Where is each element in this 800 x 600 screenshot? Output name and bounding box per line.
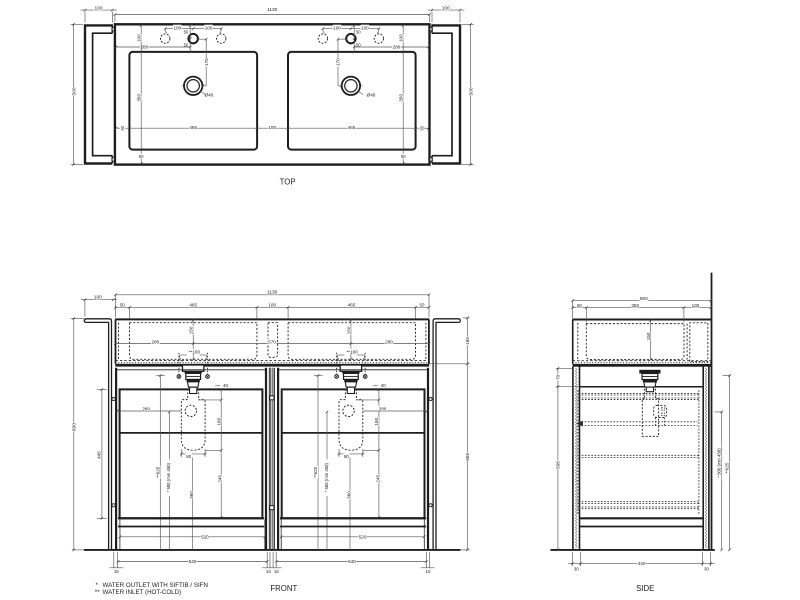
svg-text:80: 80 bbox=[344, 454, 349, 459]
svg-text:50: 50 bbox=[139, 154, 144, 159]
svg-text:* 500 (min 450): * 500 (min 450) bbox=[324, 462, 329, 492]
svg-text:595: 595 bbox=[556, 461, 561, 469]
svg-text:50: 50 bbox=[120, 302, 125, 307]
svg-text:50: 50 bbox=[184, 29, 189, 34]
svg-text:360: 360 bbox=[347, 491, 352, 499]
svg-text:170: 170 bbox=[204, 58, 209, 66]
svg-text:WATER INLET (HOT-COLD): WATER INLET (HOT-COLD) bbox=[103, 589, 182, 596]
svg-text:40: 40 bbox=[223, 383, 229, 388]
svg-text:**625: **625 bbox=[724, 462, 729, 474]
svg-text:150: 150 bbox=[646, 332, 651, 340]
svg-text:500: 500 bbox=[640, 296, 648, 302]
svg-text:10: 10 bbox=[266, 569, 271, 574]
svg-text:* 500 (min 450): * 500 (min 450) bbox=[166, 462, 171, 492]
svg-text:WATER OUTLET WITH SIFTIB / SIF: WATER OUTLET WITH SIFTIB / SIFN bbox=[103, 582, 208, 589]
svg-text:100: 100 bbox=[442, 5, 450, 11]
svg-text:Ø46: Ø46 bbox=[205, 92, 214, 97]
svg-text:1130: 1130 bbox=[267, 7, 278, 13]
svg-text:350: 350 bbox=[399, 94, 404, 102]
svg-text:50: 50 bbox=[420, 302, 425, 307]
svg-text:10: 10 bbox=[114, 569, 119, 574]
svg-text:10: 10 bbox=[426, 569, 431, 574]
svg-text:**100: **100 bbox=[346, 349, 358, 354]
svg-text:445: 445 bbox=[97, 451, 102, 459]
svg-text:TOP: TOP bbox=[280, 177, 296, 186]
svg-text:280: 280 bbox=[142, 406, 150, 411]
svg-text:280: 280 bbox=[379, 406, 387, 411]
svg-text:50: 50 bbox=[120, 125, 125, 130]
svg-text:280: 280 bbox=[140, 45, 148, 50]
svg-text:100: 100 bbox=[399, 34, 404, 42]
svg-text:10: 10 bbox=[274, 569, 279, 574]
svg-text:360: 360 bbox=[189, 491, 194, 499]
svg-text:465: 465 bbox=[189, 302, 197, 307]
svg-text:50: 50 bbox=[577, 303, 582, 308]
svg-text:100: 100 bbox=[173, 25, 181, 30]
svg-text:50: 50 bbox=[356, 29, 361, 34]
svg-text:440: 440 bbox=[638, 561, 646, 566]
svg-text:* 500 (min 450): * 500 (min 450) bbox=[717, 448, 722, 478]
svg-text:500: 500 bbox=[468, 87, 474, 95]
svg-text:50: 50 bbox=[356, 42, 361, 47]
svg-text:Ø46: Ø46 bbox=[367, 92, 376, 97]
svg-text:50: 50 bbox=[401, 154, 406, 159]
svg-text:80: 80 bbox=[186, 454, 191, 459]
svg-text:100: 100 bbox=[361, 25, 369, 30]
svg-text:SIDE: SIDE bbox=[636, 584, 654, 593]
svg-text:280: 280 bbox=[393, 45, 401, 50]
svg-text:180: 180 bbox=[216, 417, 221, 425]
svg-text:665: 665 bbox=[465, 453, 470, 461]
svg-text:**: ** bbox=[95, 589, 100, 596]
svg-text:70: 70 bbox=[556, 374, 561, 380]
svg-text:830: 830 bbox=[72, 423, 78, 431]
svg-text:150: 150 bbox=[346, 326, 351, 334]
svg-text:245: 245 bbox=[375, 475, 380, 483]
svg-text:50: 50 bbox=[419, 125, 424, 130]
svg-text:**100: **100 bbox=[189, 349, 201, 354]
svg-text:540: 540 bbox=[348, 559, 356, 564]
svg-text:100: 100 bbox=[94, 5, 102, 11]
svg-text:350: 350 bbox=[631, 303, 639, 308]
svg-text:100: 100 bbox=[268, 302, 276, 307]
svg-text:**625: **625 bbox=[313, 466, 318, 478]
svg-text:100: 100 bbox=[205, 25, 213, 30]
svg-text:150: 150 bbox=[189, 326, 194, 334]
svg-text:465: 465 bbox=[189, 125, 197, 130]
svg-text:540: 540 bbox=[189, 559, 197, 564]
svg-text:100: 100 bbox=[94, 295, 102, 301]
svg-text:170: 170 bbox=[336, 58, 341, 66]
svg-text:520: 520 bbox=[201, 534, 209, 539]
svg-text:100: 100 bbox=[268, 125, 276, 130]
svg-text:500: 500 bbox=[71, 87, 77, 95]
svg-text:100: 100 bbox=[137, 34, 142, 42]
svg-text:465: 465 bbox=[348, 125, 356, 130]
svg-text:165: 165 bbox=[465, 337, 470, 345]
svg-text:245: 245 bbox=[218, 475, 223, 483]
svg-text:50: 50 bbox=[184, 42, 189, 47]
svg-text:FRONT: FRONT bbox=[270, 584, 297, 593]
svg-text:180: 180 bbox=[374, 417, 379, 425]
svg-text:465: 465 bbox=[348, 302, 356, 307]
svg-text:520: 520 bbox=[359, 534, 367, 539]
svg-text:30: 30 bbox=[704, 567, 709, 572]
svg-text:280: 280 bbox=[152, 339, 160, 344]
svg-text:1130: 1130 bbox=[267, 290, 278, 296]
svg-text:100: 100 bbox=[333, 25, 341, 30]
svg-text:280: 280 bbox=[385, 339, 393, 344]
svg-text:30: 30 bbox=[574, 567, 579, 572]
svg-text:**625: **625 bbox=[156, 466, 161, 478]
svg-text:100: 100 bbox=[692, 303, 700, 308]
svg-text:40: 40 bbox=[381, 383, 387, 388]
svg-text:570: 570 bbox=[268, 339, 276, 344]
svg-text:350: 350 bbox=[137, 94, 142, 102]
